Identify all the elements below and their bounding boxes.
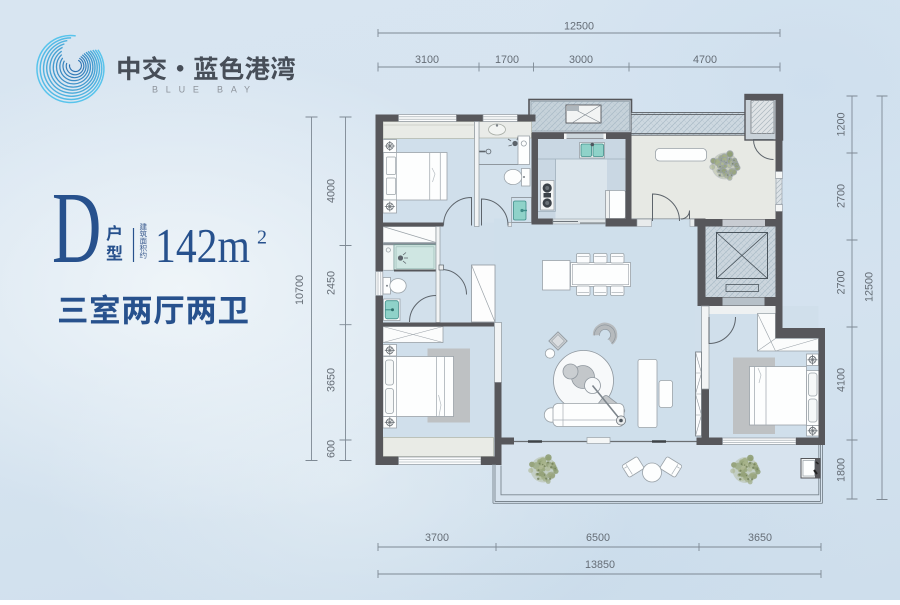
svg-text:600: 600 xyxy=(326,440,338,458)
svg-text:D: D xyxy=(52,172,101,285)
svg-text:4000: 4000 xyxy=(326,179,338,203)
svg-text:4100: 4100 xyxy=(836,368,848,392)
svg-text:142m: 142m xyxy=(155,218,250,273)
svg-text:10700: 10700 xyxy=(294,275,306,305)
svg-text:3000: 3000 xyxy=(569,54,593,66)
svg-text:12500: 12500 xyxy=(864,272,876,302)
svg-text:2700: 2700 xyxy=(836,184,848,208)
svg-text:3650: 3650 xyxy=(326,368,338,392)
svg-text:1700: 1700 xyxy=(495,54,519,66)
svg-text:13850: 13850 xyxy=(585,559,615,571)
svg-text:2700: 2700 xyxy=(836,270,848,294)
svg-text:2450: 2450 xyxy=(326,271,338,295)
svg-text:3650: 3650 xyxy=(748,532,772,544)
svg-text:BLUE BAY: BLUE BAY xyxy=(152,85,258,95)
svg-text:2: 2 xyxy=(257,227,267,249)
svg-text:4700: 4700 xyxy=(693,54,717,66)
svg-text:6500: 6500 xyxy=(586,532,610,544)
svg-text:1200: 1200 xyxy=(836,112,848,136)
svg-text:3700: 3700 xyxy=(425,532,449,544)
svg-text:1800: 1800 xyxy=(836,458,848,482)
svg-text:3100: 3100 xyxy=(415,54,439,66)
svg-text:12500: 12500 xyxy=(564,21,594,33)
